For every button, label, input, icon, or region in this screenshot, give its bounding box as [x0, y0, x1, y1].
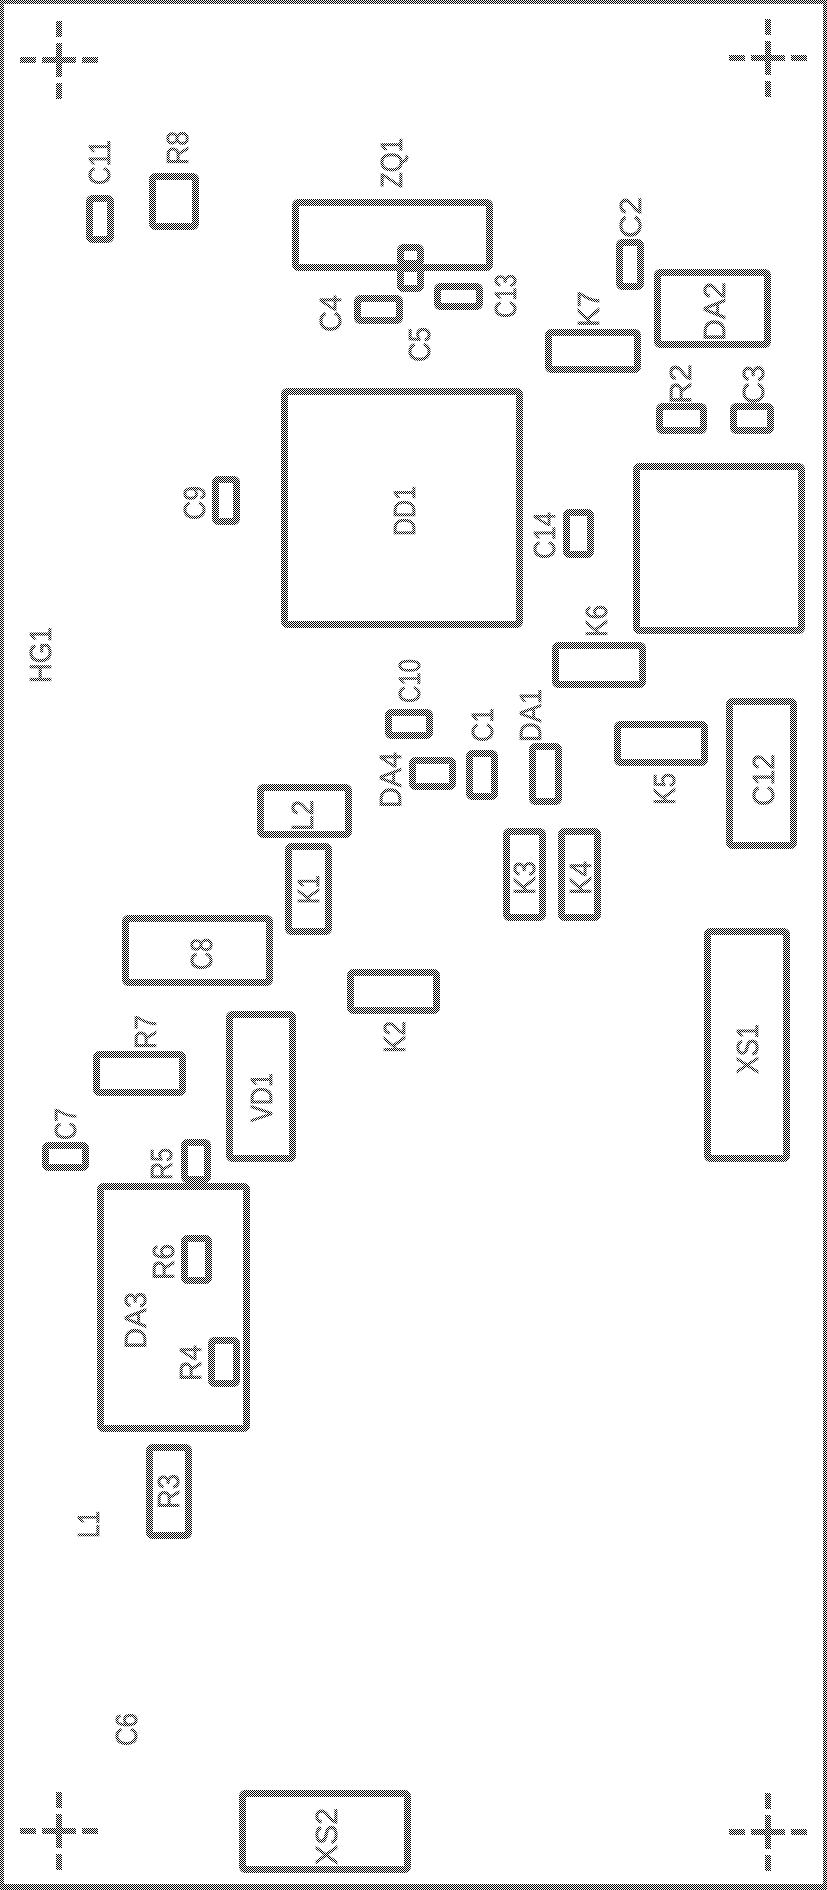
- svg-text:C3: C3: [736, 365, 771, 404]
- svg-text:K7: K7: [571, 291, 606, 327]
- svg-text:R7: R7: [128, 1015, 163, 1049]
- svg-text:K3: K3: [507, 861, 542, 895]
- svg-text:C2: C2: [613, 197, 648, 238]
- svg-text:K5: K5: [647, 773, 682, 805]
- svg-text:DD1: DD1: [387, 486, 422, 536]
- svg-text:R8: R8: [160, 131, 195, 165]
- svg-text:ZQ1: ZQ1: [374, 138, 409, 188]
- svg-text:R3: R3: [151, 1474, 186, 1509]
- svg-text:C11: C11: [82, 140, 117, 185]
- svg-text:K6: K6: [579, 605, 614, 637]
- svg-text:L2: L2: [285, 800, 320, 831]
- svg-text:DA1: DA1: [513, 689, 548, 742]
- svg-text:R4: R4: [173, 1345, 208, 1381]
- svg-text:C10: C10: [392, 659, 427, 703]
- svg-text:K2: K2: [377, 1021, 412, 1053]
- svg-text:C14: C14: [527, 512, 562, 559]
- svg-text:C6: C6: [109, 1713, 144, 1746]
- svg-text:C4: C4: [313, 295, 348, 332]
- svg-text:C12: C12: [746, 754, 781, 806]
- svg-text:DA2: DA2: [697, 282, 732, 341]
- svg-text:DA3: DA3: [118, 1292, 153, 1349]
- svg-text:C9: C9: [177, 486, 212, 520]
- svg-text:C13: C13: [488, 274, 523, 318]
- svg-text:K1: K1: [291, 875, 326, 904]
- svg-text:R6: R6: [146, 1244, 181, 1280]
- svg-text:C1: C1: [465, 708, 500, 742]
- svg-text:VD1: VD1: [244, 1073, 279, 1122]
- svg-text:R5: R5: [144, 1148, 179, 1180]
- svg-text:L1: L1: [71, 1511, 106, 1538]
- svg-text:C8: C8: [184, 938, 219, 970]
- svg-text:XS2: XS2: [309, 1808, 344, 1865]
- svg-text:C5: C5: [402, 327, 437, 362]
- svg-text:HG1: HG1: [23, 627, 58, 683]
- svg-text:XS1: XS1: [730, 1024, 765, 1074]
- svg-text:R2: R2: [663, 364, 698, 404]
- svg-text:K4: K4: [563, 861, 598, 895]
- svg-text:C7: C7: [48, 1108, 83, 1140]
- svg-text:DA4: DA4: [373, 752, 408, 808]
